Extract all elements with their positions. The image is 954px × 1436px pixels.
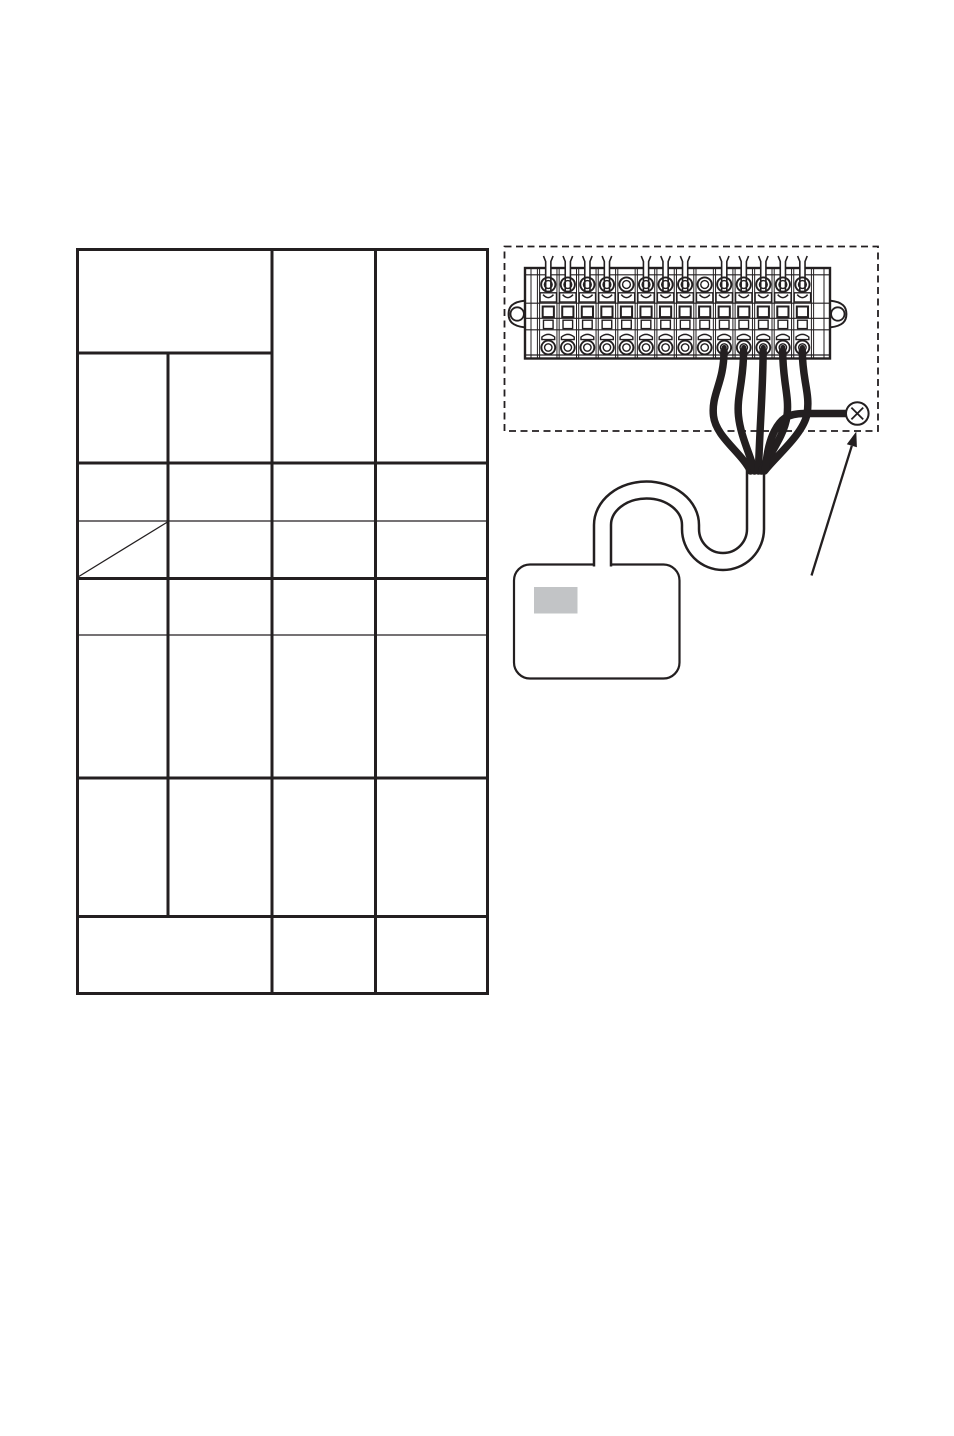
ear-screw-hole	[511, 307, 524, 320]
terminal-block	[509, 256, 847, 359]
paper-background	[0, 0, 954, 1436]
remote-controller	[514, 565, 680, 679]
ear-screw-hole	[831, 307, 844, 320]
remote-controller-body	[514, 565, 680, 679]
remote-controller-display-label	[534, 587, 578, 614]
manual-page	[0, 0, 954, 1436]
page-figure	[0, 0, 954, 1436]
clamp-marker	[846, 402, 869, 425]
wire	[759, 351, 764, 471]
